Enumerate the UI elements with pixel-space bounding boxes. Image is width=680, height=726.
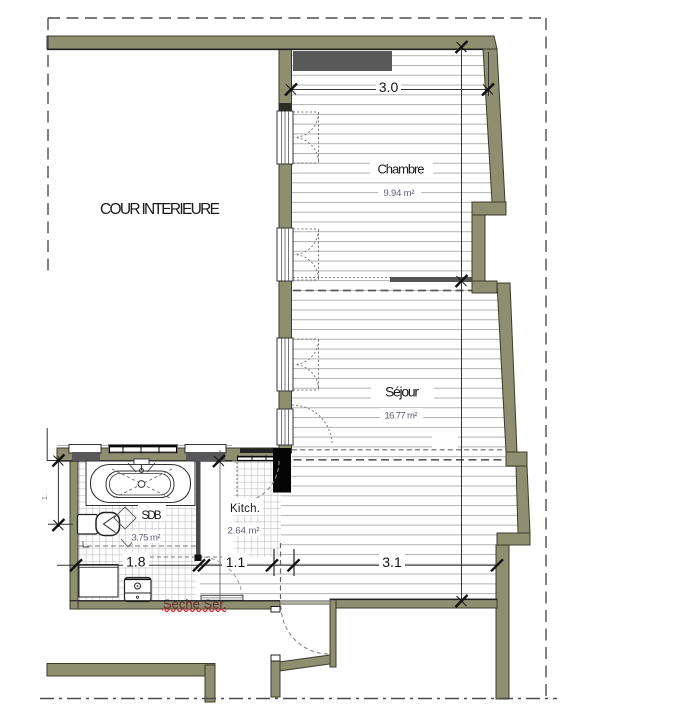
svg-text:3.0: 3.0 [379, 79, 399, 95]
svg-text:SDB: SDB [142, 510, 162, 522]
svg-text:Kitch.: Kitch. [230, 503, 260, 515]
svg-text:COUR INTERIEURE: COUR INTERIEURE [100, 201, 220, 218]
svg-text:9.94 m²: 9.94 m² [384, 188, 415, 199]
svg-text:3.1: 3.1 [382, 554, 402, 570]
svg-text:Chambre: Chambre [378, 162, 425, 177]
svg-text:1.: 1. [42, 494, 49, 500]
svg-text:1.8: 1.8 [126, 553, 146, 569]
svg-text:Séjour: Séjour [385, 384, 419, 400]
svg-text:16.77 m²: 16.77 m² [385, 411, 418, 422]
svg-text:3.75 m²: 3.75 m² [132, 533, 161, 544]
svg-text:2.64 m²: 2.64 m² [228, 526, 260, 537]
svg-text:1.1: 1.1 [226, 554, 246, 570]
